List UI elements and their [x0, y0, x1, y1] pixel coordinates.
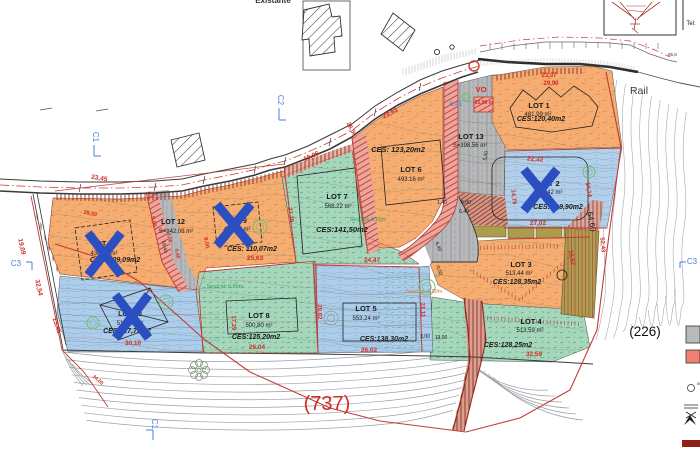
svg-text:25,63: 25,63 [247, 255, 264, 262]
svg-text:LOT 13: LOT 13 [458, 132, 483, 141]
svg-text:13,00: 13,00 [435, 335, 448, 341]
svg-text:29,90: 29,90 [543, 81, 559, 87]
svg-text:C1: C1 [150, 419, 159, 430]
svg-text:27,02: 27,02 [530, 220, 547, 227]
svg-text:24,47: 24,47 [364, 257, 381, 264]
svg-text:(226): (226) [629, 324, 661, 339]
svg-text:95,8: 95,8 [668, 52, 677, 57]
svg-text:CES: 123,20m2: CES: 123,20m2 [371, 145, 426, 154]
svg-text:23,37: 23,37 [541, 73, 557, 79]
svg-text:LOT 6: LOT 6 [400, 165, 421, 174]
svg-text:Seuil pb 0,80m: Seuil pb 0,80m [350, 217, 387, 223]
svg-text:LOT 12: LOT 12 [161, 219, 185, 226]
svg-text:20,02: 20,02 [316, 304, 323, 320]
svg-text:513,44 m²: 513,44 m² [505, 271, 532, 277]
svg-text:5,00: 5,00 [461, 200, 471, 206]
svg-text:568.22 m²: 568.22 m² [324, 204, 351, 210]
svg-text:LOT 7: LOT 7 [326, 192, 347, 201]
svg-text:VO: VO [476, 85, 487, 94]
svg-text:493.16 m²: 493.16 m² [397, 177, 424, 183]
svg-text:LOT 1: LOT 1 [528, 101, 549, 110]
svg-text:500,80 m²: 500,80 m² [245, 323, 272, 329]
svg-text:CES:141,50m2: CES:141,50m2 [316, 225, 369, 234]
svg-text:LOT 4: LOT 4 [520, 317, 542, 326]
svg-text:1,40: 1,40 [437, 200, 447, 206]
svg-text:C1: C1 [91, 132, 100, 143]
svg-text:513,59 m²: 513,59 m² [516, 328, 543, 334]
svg-text:Tel:: Tel: [686, 21, 696, 27]
svg-text:6,41: 6,41 [450, 101, 463, 108]
svg-text:S=942,08 m²: S=942,08 m² [159, 229, 194, 235]
svg-text:C3: C3 [687, 257, 698, 266]
svg-text:CES:128,35m2: CES:128,35m2 [493, 279, 541, 286]
svg-text:17,29: 17,29 [230, 315, 237, 331]
svg-text:(737): (737) [304, 393, 351, 415]
svg-text:LOT 5: LOT 5 [355, 304, 376, 313]
svg-text:C2: C2 [276, 95, 285, 106]
svg-text:CES:125,20m2: CES:125,20m2 [232, 334, 280, 341]
svg-text:22,32: 22,32 [527, 155, 544, 163]
svg-text:32,59: 32,59 [526, 351, 543, 358]
svg-text:6,40: 6,40 [459, 209, 469, 215]
svg-text:CES: 110,07m2: CES: 110,07m2 [227, 246, 277, 253]
svg-text:CES:128,25m2: CES:128,25m2 [484, 342, 532, 349]
svg-text:25,96 m: 25,96 m [475, 100, 494, 106]
svg-text:Rail: Rail [630, 85, 648, 97]
svg-text:LOT 8: LOT 8 [248, 311, 269, 320]
svg-text:26,04: 26,04 [249, 344, 266, 351]
svg-text:S=398,56 m²: S=398,56 m² [453, 143, 488, 149]
svg-text:LOT 3: LOT 3 [510, 260, 531, 269]
svg-text:C3: C3 [11, 259, 22, 268]
svg-text:Existante: Existante [255, 0, 291, 5]
svg-text:30,10: 30,10 [125, 340, 142, 347]
svg-text:Seuil pb 0,80m: Seuil pb 0,80m [207, 284, 244, 290]
svg-text:CES:120,40m2: CES:120,40m2 [517, 116, 565, 123]
